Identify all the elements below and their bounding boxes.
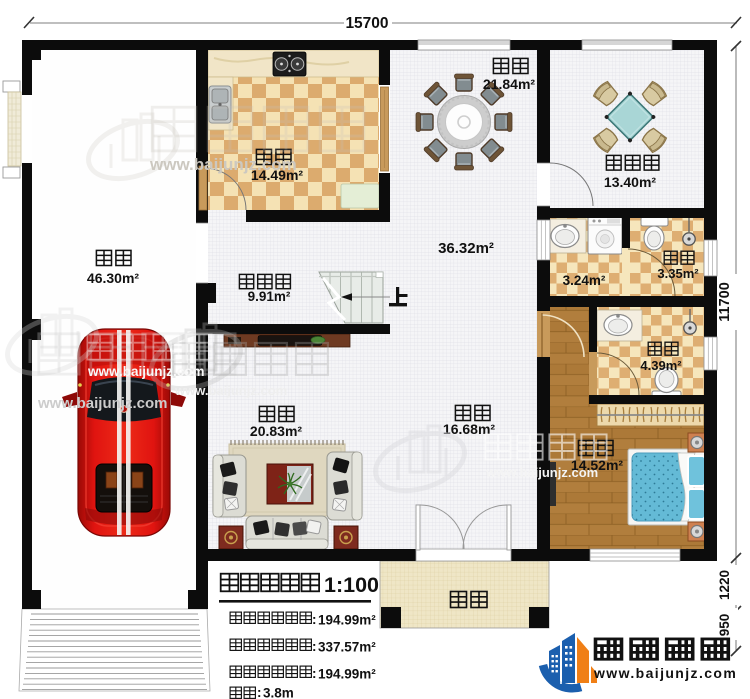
- svg-text:21.84m²: 21.84m²: [483, 76, 535, 92]
- svg-text::: :: [312, 639, 317, 654]
- svg-text:3.8m: 3.8m: [263, 686, 294, 699]
- svg-text::: :: [257, 685, 262, 699]
- svg-text:3.24m²: 3.24m²: [563, 273, 606, 288]
- svg-text:950: 950: [717, 614, 732, 637]
- svg-text:www.baijunjz.com: www.baijunjz.com: [485, 465, 598, 480]
- svg-text:194.99m²: 194.99m²: [318, 667, 376, 682]
- svg-text:3.35m²: 3.35m²: [657, 266, 699, 281]
- svg-text:www.baijunjz.com: www.baijunjz.com: [37, 395, 167, 412]
- svg-text::: :: [312, 612, 317, 627]
- svg-text:9.91m²: 9.91m²: [248, 289, 291, 304]
- svg-text:www.baijunjz.com: www.baijunjz.com: [593, 665, 737, 681]
- svg-text:4.39m²: 4.39m²: [640, 358, 682, 373]
- svg-text:337.57m²: 337.57m²: [318, 640, 376, 655]
- svg-text:15700: 15700: [345, 15, 388, 32]
- svg-text:www.baijunjz.com: www.baijunjz.com: [149, 155, 297, 174]
- svg-text:194.99m²: 194.99m²: [318, 613, 376, 628]
- svg-text:36.32m²: 36.32m²: [438, 240, 494, 257]
- svg-text:www.baijunjz.com: www.baijunjz.com: [87, 364, 205, 379]
- svg-text:1220: 1220: [717, 570, 732, 600]
- svg-text:13.40m²: 13.40m²: [604, 174, 656, 190]
- svg-text:20.83m²: 20.83m²: [250, 423, 302, 439]
- svg-text:46.30m²: 46.30m²: [87, 270, 139, 286]
- svg-text:1:100: 1:100: [324, 573, 379, 597]
- svg-text::: :: [312, 666, 317, 681]
- svg-text:11700: 11700: [717, 282, 733, 322]
- svg-text:www.baijunjz.com: www.baijunjz.com: [174, 383, 287, 398]
